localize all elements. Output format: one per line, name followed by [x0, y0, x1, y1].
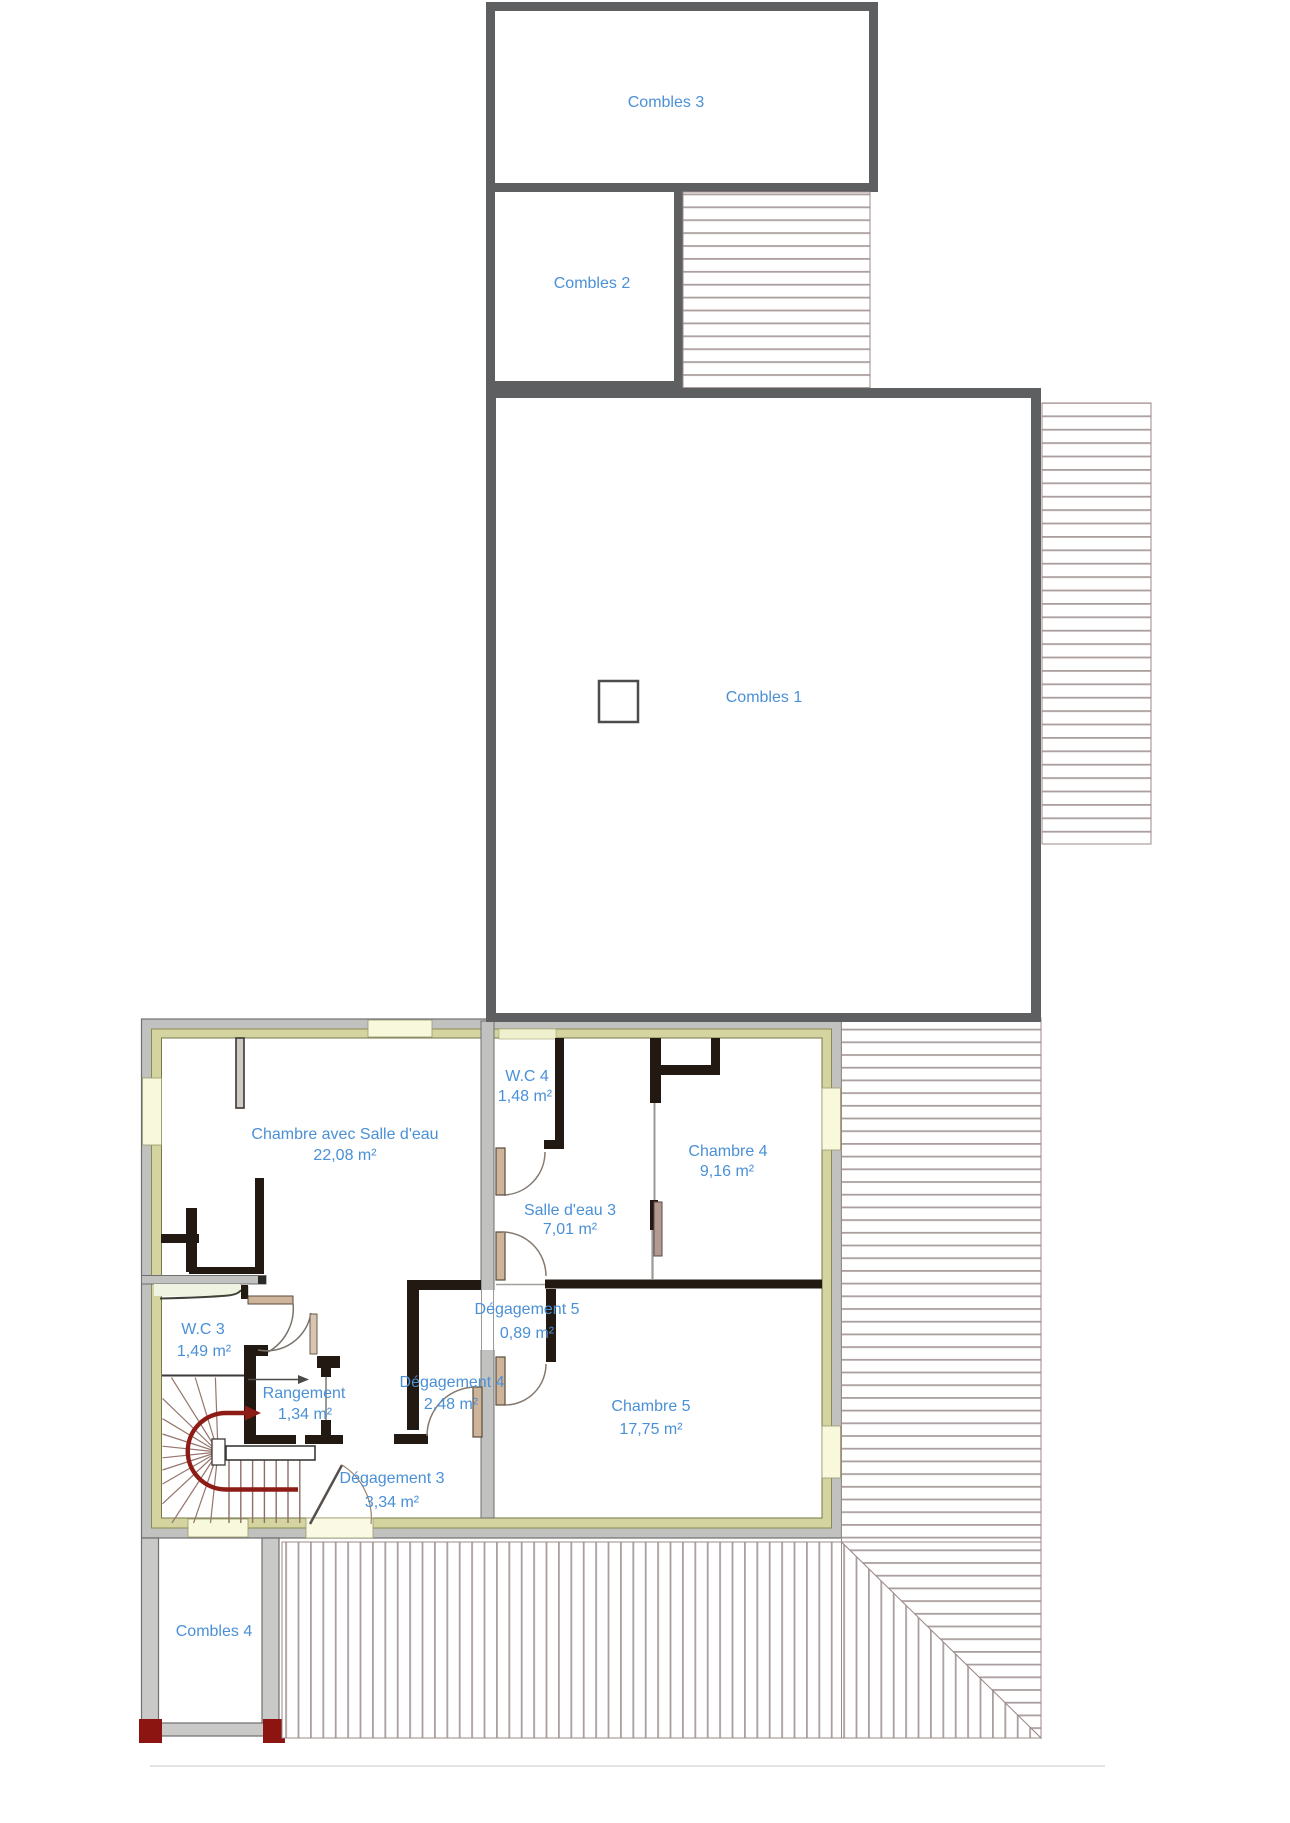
svg-text:9,16 m²: 9,16 m² — [700, 1163, 755, 1180]
svg-text:Salle d'eau 3: Salle d'eau 3 — [524, 1202, 616, 1219]
svg-text:W.C 3: W.C 3 — [181, 1321, 225, 1338]
svg-text:1,49 m²: 1,49 m² — [177, 1343, 232, 1360]
svg-text:W.C 4: W.C 4 — [505, 1068, 549, 1085]
svg-text:22,08 m²: 22,08 m² — [313, 1147, 377, 1164]
svg-text:1,48 m²: 1,48 m² — [498, 1088, 553, 1105]
svg-text:Dégagement 4: Dégagement 4 — [400, 1374, 505, 1391]
svg-text:Dégagement 5: Dégagement 5 — [475, 1301, 580, 1318]
svg-text:Combles 1: Combles 1 — [726, 689, 803, 706]
svg-text:Chambre 4: Chambre 4 — [688, 1143, 767, 1160]
svg-text:Combles 3: Combles 3 — [628, 94, 705, 111]
svg-text:7,01 m²: 7,01 m² — [543, 1221, 598, 1238]
svg-text:Rangement: Rangement — [263, 1385, 346, 1402]
svg-text:Combles 2: Combles 2 — [554, 275, 631, 292]
svg-text:1,34 m²: 1,34 m² — [278, 1406, 333, 1423]
svg-text:17,75 m²: 17,75 m² — [619, 1421, 683, 1438]
svg-text:Combles 4: Combles 4 — [176, 1623, 253, 1640]
svg-text:0,89 m²: 0,89 m² — [500, 1325, 555, 1342]
svg-text:2,48 m²: 2,48 m² — [424, 1396, 479, 1413]
svg-text:Chambre 5: Chambre 5 — [611, 1398, 690, 1415]
svg-text:Chambre avec Salle d'eau: Chambre avec Salle d'eau — [251, 1126, 438, 1143]
svg-text:3,34 m²: 3,34 m² — [365, 1494, 420, 1511]
svg-text:Dégagement 3: Dégagement 3 — [340, 1470, 445, 1487]
